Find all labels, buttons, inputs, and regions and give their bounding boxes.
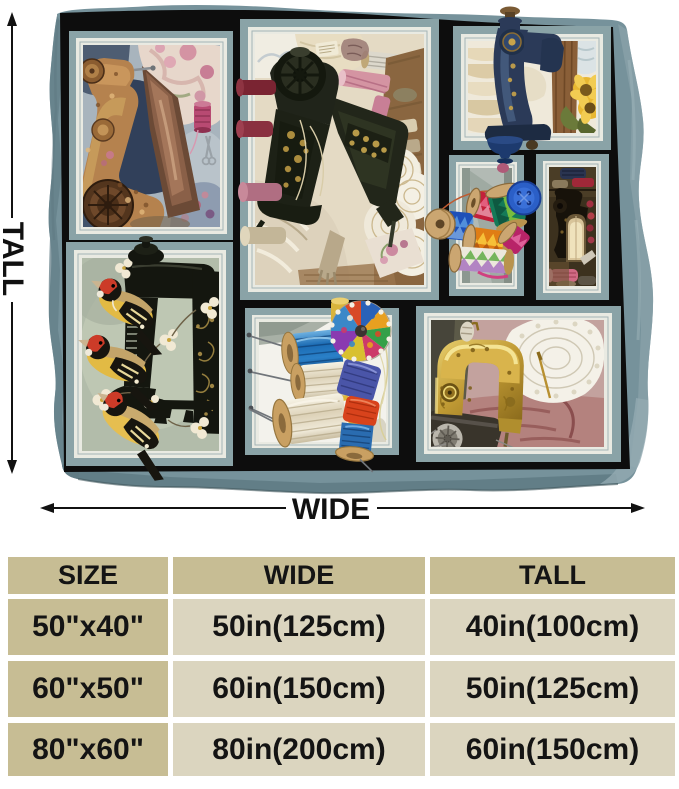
svg-text:WIDE: WIDE [292,493,370,526]
svg-text:TALL: TALL [0,222,29,296]
